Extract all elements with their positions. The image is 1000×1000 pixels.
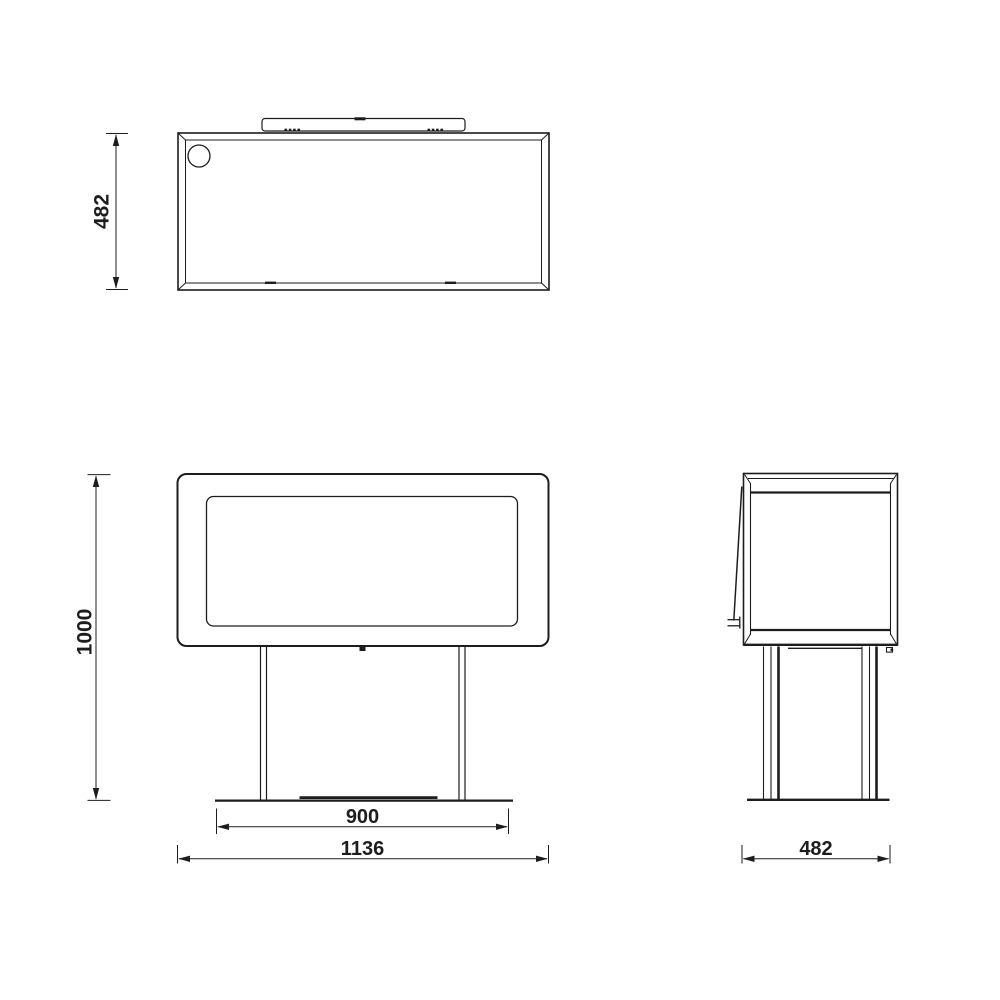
side-view-rear-lock-tab — [887, 648, 894, 653]
top-view-strip-notch — [355, 117, 366, 120]
dimension-label-top-depth: 482 — [91, 194, 114, 229]
dimension-front-total-width: 1136 — [178, 838, 549, 864]
dimension-label-front-base-width: 900 — [346, 806, 379, 828]
dimension-front-height: 1000 — [74, 475, 111, 801]
dimension-top-depth: 482 — [91, 134, 128, 290]
arrow-down-icon — [93, 788, 99, 800]
front-view-legs — [261, 647, 466, 801]
arrow-left-icon — [178, 856, 190, 862]
dimension-label-front-total-width: 1136 — [341, 838, 384, 860]
arrow-up-icon — [113, 134, 119, 146]
dimension-side-depth: 482 — [742, 838, 890, 864]
arrow-right-icon — [536, 856, 548, 862]
front-view-center-tab — [360, 646, 366, 651]
arrow-right-icon — [878, 856, 890, 862]
dimension-front-base-width: 900 — [217, 806, 509, 834]
top-view-inner-body — [186, 140, 542, 283]
top-view-corner-chamfers — [178, 133, 549, 290]
front-view-display-body — [178, 474, 549, 646]
side-view-legs — [764, 647, 877, 800]
front-view-screen — [207, 497, 518, 627]
dimension-label-front-height: 1000 — [74, 609, 97, 656]
side-view: 482 — [728, 474, 898, 864]
arrow-down-icon — [113, 277, 119, 289]
top-view-camera-port — [188, 145, 210, 167]
front-view: 1000 900 1136 — [74, 474, 549, 864]
arrow-right-icon — [496, 824, 508, 830]
side-view-open-door — [734, 487, 742, 621]
top-view: 482 — [91, 117, 549, 290]
side-view-corner-chamfers — [745, 475, 897, 645]
arrow-left-icon — [743, 856, 755, 862]
top-view-bottom-tick-left — [265, 282, 276, 284]
top-view-outer-body — [178, 133, 549, 290]
arrow-up-icon — [93, 475, 99, 487]
top-view-strip — [262, 119, 465, 132]
top-view-bottom-tick-right — [445, 282, 456, 284]
arrow-left-icon — [217, 824, 229, 830]
dimension-label-side-depth: 482 — [799, 838, 832, 860]
technical-drawing-display-stand: 482 1000 900 — [0, 0, 1000, 1000]
side-view-display-body — [744, 474, 898, 646]
